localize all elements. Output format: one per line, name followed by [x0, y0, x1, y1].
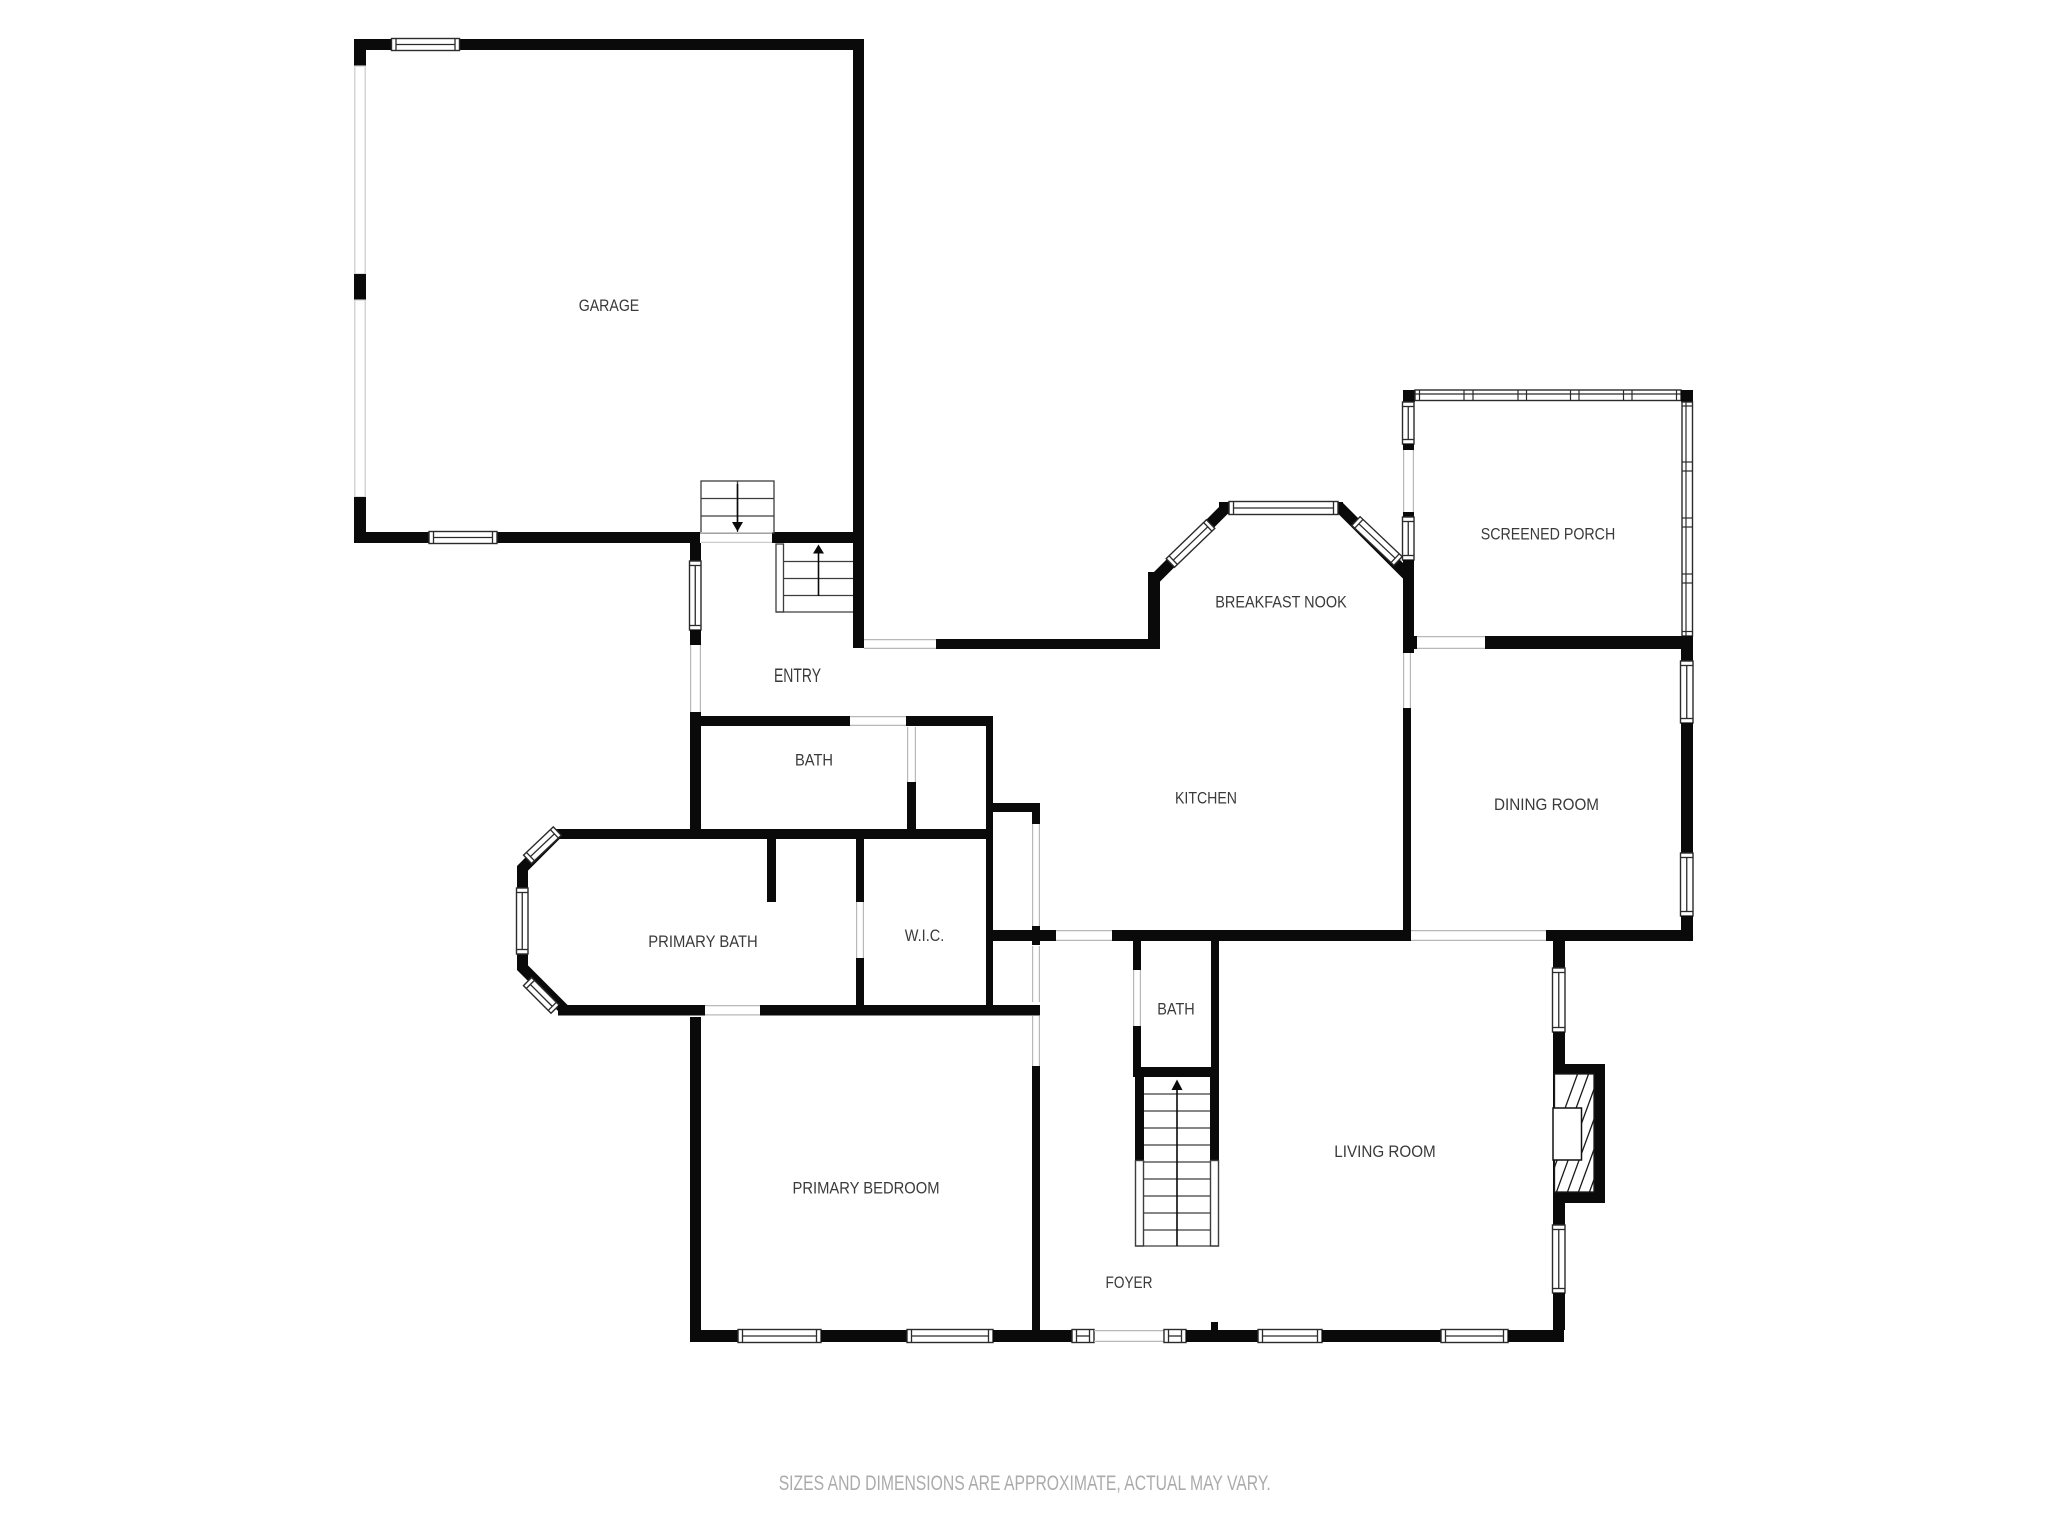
svg-text:GARAGE: GARAGE [579, 296, 640, 315]
svg-text:DINING ROOM: DINING ROOM [1494, 795, 1599, 814]
svg-text:PRIMARY BEDROOM: PRIMARY BEDROOM [793, 1179, 940, 1198]
svg-text:BATH: BATH [1157, 1000, 1195, 1019]
svg-text:BREAKFAST NOOK: BREAKFAST NOOK [1215, 593, 1347, 612]
svg-text:FOYER: FOYER [1106, 1273, 1153, 1292]
svg-text:BATH: BATH [795, 751, 833, 770]
svg-text:SIZES AND DIMENSIONS ARE APPRO: SIZES AND DIMENSIONS ARE APPROXIMATE, AC… [779, 1472, 1271, 1495]
svg-text:W.I.C.: W.I.C. [905, 926, 945, 945]
svg-text:KITCHEN: KITCHEN [1175, 789, 1237, 808]
svg-text:ENTRY: ENTRY [774, 666, 821, 687]
svg-text:SCREENED PORCH: SCREENED PORCH [1481, 525, 1616, 544]
svg-text:PRIMARY BATH: PRIMARY BATH [648, 932, 758, 951]
svg-text:LIVING ROOM: LIVING ROOM [1334, 1142, 1436, 1161]
